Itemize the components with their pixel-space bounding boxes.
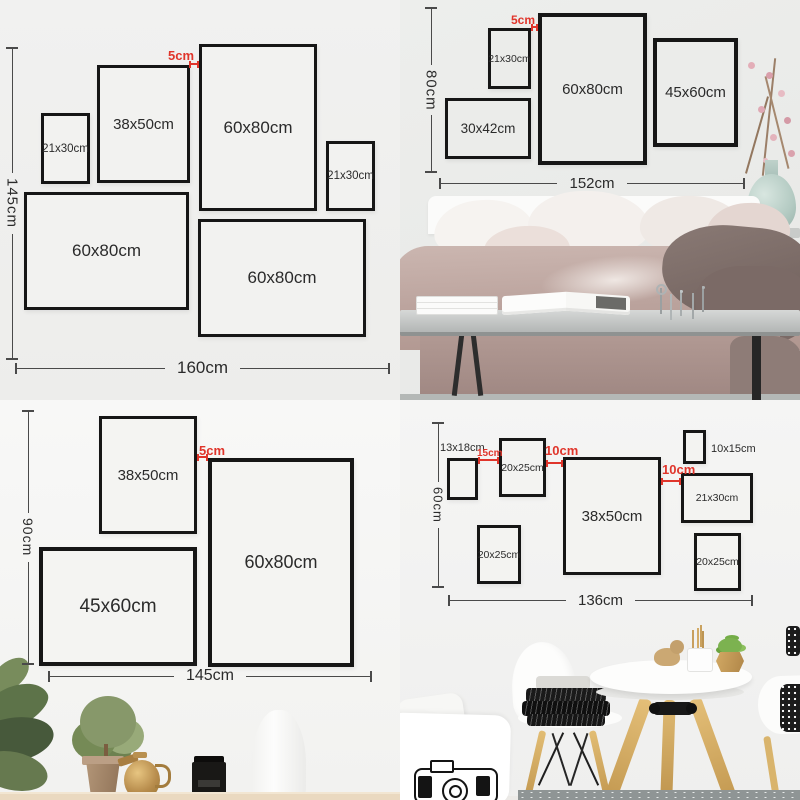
folded-knit-black [527,714,605,726]
vertical-dimension: 80cm [424,7,438,173]
quadrant-layout-145x90: 90cm 38x50cm 60x80cm 45x60cm 5cm 145cm [0,400,400,800]
dim-cap [388,363,390,374]
bracket-knob [686,703,697,714]
vertical-dimension-label: 145cm [4,173,21,233]
gap-line [189,63,199,65]
dim-line [17,368,165,369]
dim-line [12,49,13,173]
dim-line [431,115,432,171]
magazine-photo [596,296,626,310]
frame-60x80: 60x80cm [24,192,189,310]
gap-label: 10cm [545,443,578,458]
dim-line [441,183,557,184]
frame-20x25: 20x25cm [694,533,741,591]
dim-line [28,562,29,663]
frame-13x18 [447,458,478,500]
frame-38x50: 38x50cm [99,416,197,534]
dim-line [627,183,743,184]
dim-line [635,600,751,601]
frame-21x30: 21x30cm [41,113,90,184]
bracket-knob [649,703,660,714]
horizontal-dimension-label: 145cm [174,667,246,685]
candleholder-ring [656,284,667,295]
horizontal-dimension: 145cm [48,666,372,686]
camera-print-grip [418,776,432,798]
horizontal-dimension: 152cm [439,173,745,193]
dim-cap [743,178,745,189]
dim-line [28,412,29,513]
poster-size-guide-collage: 145cm 21x30cm 38x50cm 60x80cm 21x30cm 60… [0,0,800,800]
dim-line [450,600,566,601]
horizontal-dimension-label: 160cm [165,358,240,378]
dim-cap [370,671,372,682]
frame-20x25: 20x25cm [499,438,546,497]
white-lamp [252,710,306,800]
dim-line [12,234,13,358]
bed-skirt-fold [730,336,800,394]
frame-60x80: 60x80cm [198,219,366,337]
chair-strut [552,733,571,786]
book-stack [416,296,498,315]
gap-line [531,26,538,28]
bench-leg [752,330,761,400]
frame-45x60: 45x60cm [39,547,197,666]
frame-label-10x15: 10x15cm [711,443,756,455]
frame-38x50: 38x50cm [97,65,190,183]
stick-cup [687,648,713,672]
patterned-fabric [786,626,800,656]
candle-label [198,780,220,787]
camera-print-grip [476,776,490,796]
vertical-dimension-label: 60cm [431,482,446,528]
wooden-toy-head [670,640,684,654]
blossoms [748,62,755,69]
gap-line [546,462,563,464]
dim-cap [751,595,753,606]
watering-can-lid [133,752,147,758]
frame-38x50: 38x50cm [563,457,661,575]
dim-cap [425,171,437,173]
frame-45x60: 45x60cm [653,38,738,147]
horizontal-dimension: 160cm [15,358,390,378]
frame-60x80: 60x80cm [538,13,647,165]
frame-60x80: 60x80cm [208,458,354,667]
dim-line [240,368,388,369]
dim-cap [432,586,444,588]
dim-line [50,676,174,677]
gap-label: 10cm [662,462,695,477]
frame-21x30: 21x30cm [488,28,531,89]
chair-leg [525,730,547,796]
gap-line [478,459,499,461]
gap-line [661,480,681,482]
frame-21x30: 21x30cm [681,473,753,523]
vertical-dimension: 90cm [21,410,35,665]
frame-21x30: 21x30cm [326,141,375,211]
horizontal-dimension-label: 152cm [557,175,626,192]
gap-line [197,456,208,458]
succulent [718,638,742,654]
watering-can-handle [155,764,171,788]
dim-line [431,9,432,65]
dim-line [246,676,370,677]
patterned-cushion [780,684,800,732]
dim-line [438,424,439,482]
camera-print-viewfinder [430,760,454,773]
horizontal-dimension: 136cm [448,590,753,610]
vertical-dimension: 145cm [5,47,19,360]
table-leg [689,697,737,799]
geometric-pot [716,652,744,672]
tabletop [0,792,400,800]
frame-10x15 [683,430,706,464]
frame-20x25: 20x25cm [477,525,521,584]
dim-line [438,528,439,586]
horizontal-dimension-label: 136cm [566,592,635,609]
vertical-dimension-label: 80cm [423,65,440,116]
topiary-foliage [80,696,136,748]
frame-60x80: 60x80cm [199,44,317,211]
quadrant-layout-136x60: 60cm 13x18cm 20x25cm 38x50cm 10x15cm 21x… [400,400,800,800]
camera-print-lens-inner [449,785,462,798]
second-chair-leg [763,736,780,798]
quadrant-bedroom-152x80: 80cm 21x30cm 60x80cm 45x60cm 30x42cm 5cm… [400,0,800,400]
quadrant-layout-160x145: 145cm 21x30cm 38x50cm 60x80cm 21x30cm 60… [0,0,400,400]
dim-cap [22,663,34,665]
rug [518,790,800,800]
frame-30x42: 30x42cm [445,98,531,159]
vertical-dimension-label: 90cm [20,513,36,561]
